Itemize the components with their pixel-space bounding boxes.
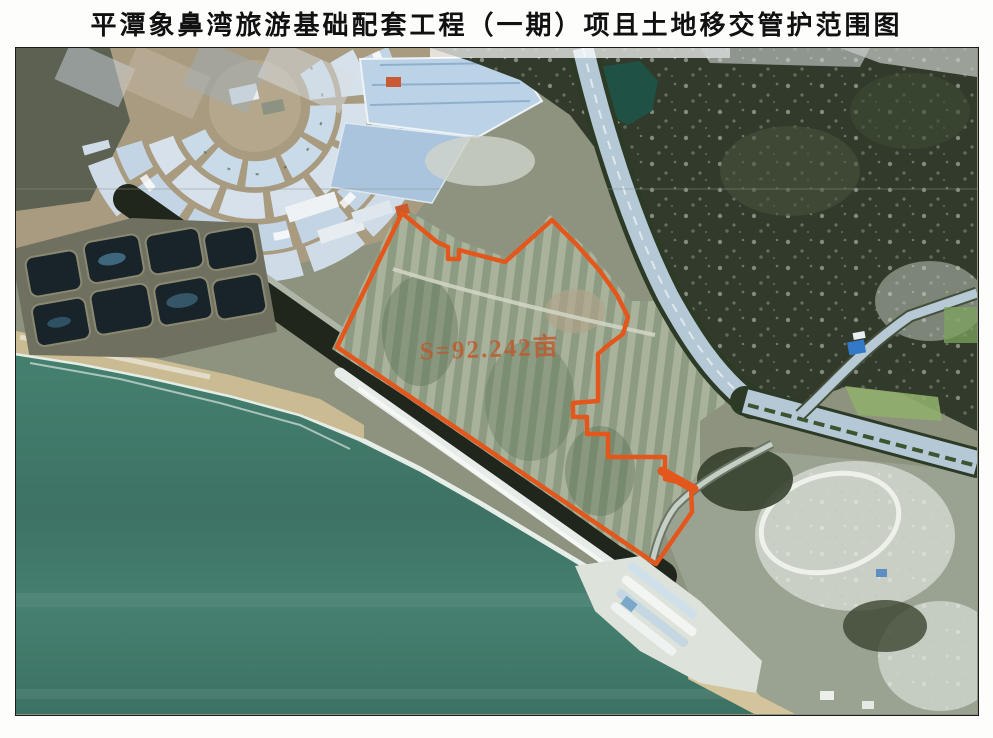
page-title: 平潭象鼻湾旅游基础配套工程（一期）项且土地移交管护范围图 xyxy=(0,5,993,42)
map-frame: S=92.242亩 xyxy=(15,47,979,716)
orange-roof xyxy=(386,77,401,87)
satellite-map: S=92.242亩 xyxy=(16,48,977,714)
scanned-map-page: 平潭象鼻湾旅游基础配套工程（一期）项且土地移交管护范围图 xyxy=(0,0,993,738)
